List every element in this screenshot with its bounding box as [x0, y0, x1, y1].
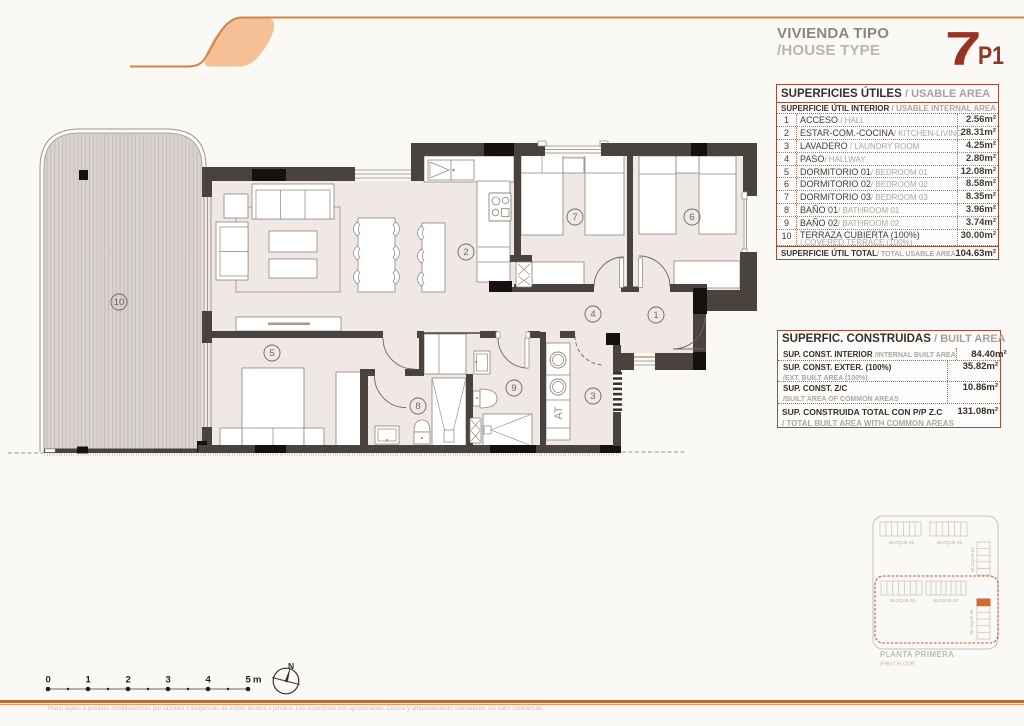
svg-text:BLOQUE 06: BLOQUE 06 [937, 540, 963, 545]
svg-text:5: 5 [269, 348, 274, 359]
svg-text:3: 3 [166, 675, 171, 686]
svg-text:4: 4 [590, 309, 595, 320]
svg-text:7: 7 [572, 212, 577, 223]
svg-text:8: 8 [415, 401, 420, 412]
svg-text:4: 4 [206, 675, 212, 686]
svg-text:N: N [288, 661, 294, 671]
svg-text:3: 3 [590, 391, 595, 402]
svg-text:BLOQUE 01: BLOQUE 01 [969, 608, 974, 634]
svg-text:2: 2 [126, 675, 131, 686]
svg-text:AT: AT [553, 406, 565, 420]
svg-text:0: 0 [46, 675, 51, 686]
svg-text:BLOQUE 04: BLOQUE 04 [970, 546, 975, 572]
svg-text:9: 9 [511, 383, 516, 394]
svg-text:5: 5 [246, 675, 252, 686]
svg-text:6: 6 [689, 212, 694, 223]
svg-text:10: 10 [114, 297, 125, 308]
svg-text:1: 1 [86, 675, 92, 686]
svg-text:BLOQUE 05: BLOQUE 05 [889, 540, 915, 545]
svg-text:/FIRST FLOOR: /FIRST FLOOR [880, 662, 915, 668]
svg-text:BLOQUE 02: BLOQUE 02 [933, 598, 959, 603]
svg-text:PLANTA PRIMERA: PLANTA PRIMERA [880, 650, 954, 659]
svg-text:m: m [253, 675, 261, 686]
svg-text:1: 1 [653, 310, 658, 321]
svg-text:BLOQUE 03: BLOQUE 03 [890, 598, 916, 603]
svg-text:2: 2 [463, 247, 468, 258]
